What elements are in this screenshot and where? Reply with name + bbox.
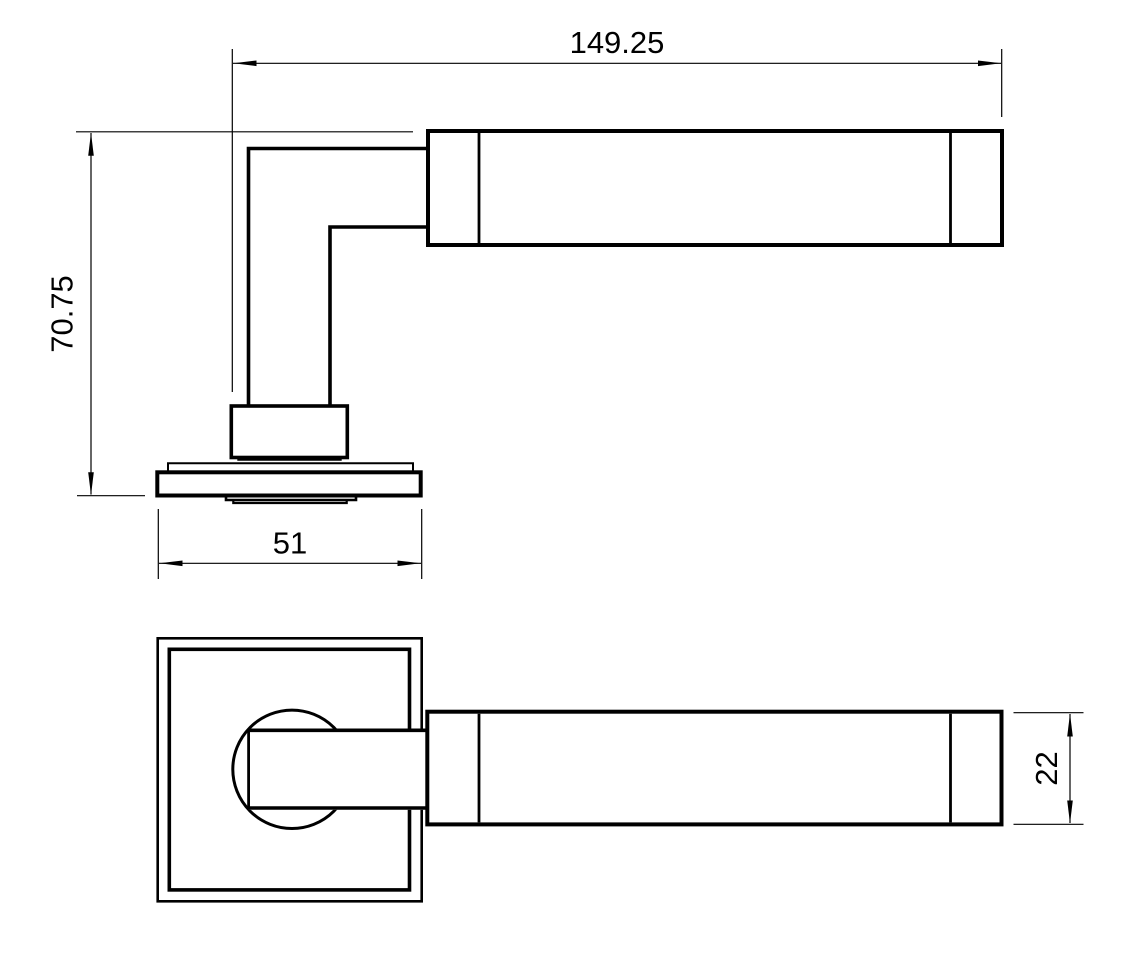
lever-grip-side (428, 131, 1002, 245)
arrowhead-left-icon (160, 561, 183, 567)
technical-drawing: 149.25 70.75 51 (0, 0, 1146, 964)
lever-grip-front (427, 712, 1001, 825)
arrowhead-up-icon (1067, 714, 1073, 737)
front-view: 22 (158, 638, 1084, 901)
dim-lever-thickness-label: 22 (1029, 751, 1064, 785)
dim-lever-length-label: 149.25 (570, 25, 665, 60)
neck-outer-profile (249, 149, 431, 407)
dim-overall-height-label: 70.75 (44, 275, 79, 353)
rose-plate-side (157, 472, 420, 495)
neck-mask (249, 729, 428, 810)
dim-rose-width-label: 51 (273, 526, 307, 561)
arrowhead-down-icon (88, 472, 94, 495)
dim-lever-thickness: 22 (1014, 713, 1084, 825)
arrowhead-left-icon (234, 61, 257, 67)
drawing-canvas: 149.25 70.75 51 (0, 0, 1146, 964)
arrowhead-up-icon (88, 133, 94, 156)
handle-side-geometry (157, 131, 1002, 503)
neck-inner-profile (330, 227, 430, 406)
spindle-hub-block (231, 406, 347, 458)
handle-front-geometry (158, 638, 1002, 901)
arrowhead-right-icon (398, 561, 421, 567)
arrowhead-right-icon (978, 61, 1001, 67)
dim-rose-width: 51 (158, 509, 421, 579)
dim-overall-height: 70.75 (44, 132, 413, 496)
side-view: 149.25 70.75 51 (44, 25, 1002, 579)
arrowhead-down-icon (1067, 801, 1073, 824)
